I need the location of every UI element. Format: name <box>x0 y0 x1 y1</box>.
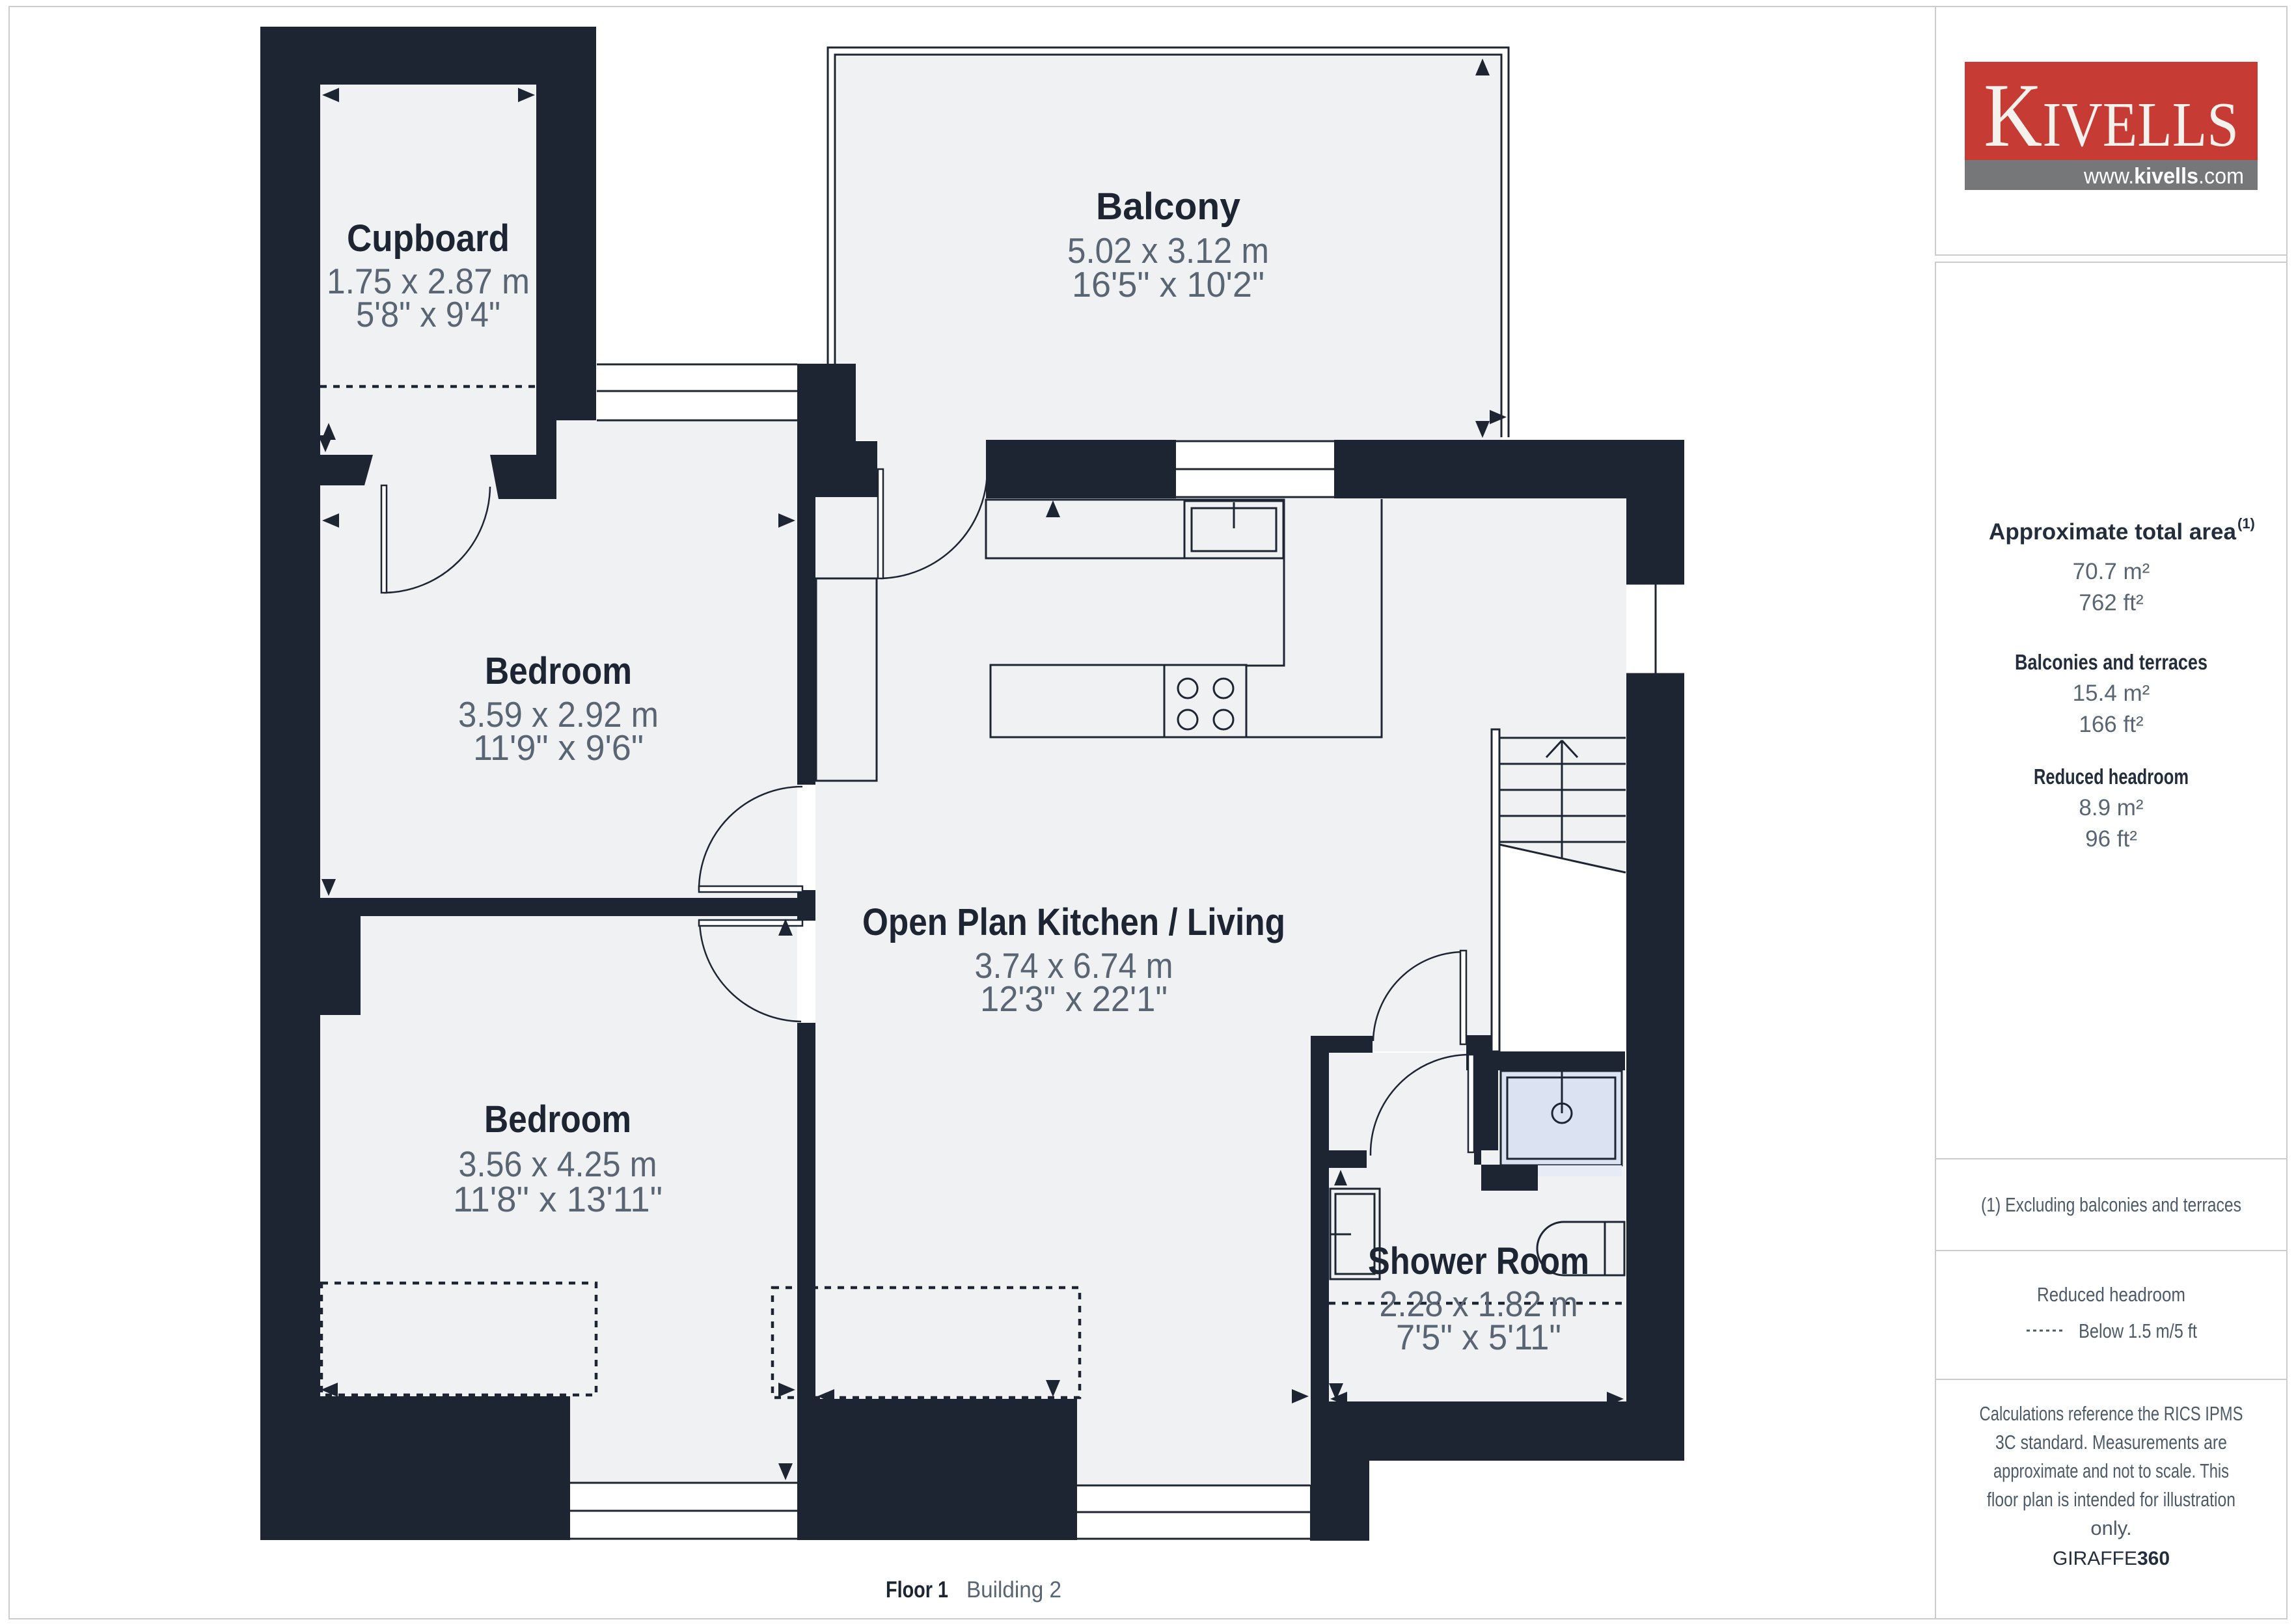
svg-text:Reduced headroom: Reduced headroom <box>2034 765 2189 789</box>
svg-text:12'3" x 22'1": 12'3" x 22'1" <box>980 979 1168 1019</box>
svg-text:Below 1.5 m/5 ft: Below 1.5 m/5 ft <box>2079 1319 2197 1342</box>
svg-text:8.9 m²: 8.9 m² <box>2079 795 2143 820</box>
svg-text:762 ft²: 762 ft² <box>2079 590 2143 616</box>
svg-text:Bedroom: Bedroom <box>485 650 632 692</box>
svg-text:GIRAFFE360: GIRAFFE360 <box>2053 1548 2170 1569</box>
svg-text:floor plan is intended for ill: floor plan is intended for illustration <box>1987 1488 2235 1511</box>
svg-text:Floor 1Building 2: Floor 1Building 2 <box>886 1577 1061 1603</box>
svg-text:96 ft²: 96 ft² <box>2085 826 2137 852</box>
svg-text:Balcony: Balcony <box>1096 185 1240 228</box>
svg-text:Calculations reference the RIC: Calculations reference the RICS IPMS <box>1980 1402 2243 1425</box>
svg-text:Approximate total area: Approximate total area <box>1989 519 2237 545</box>
svg-text:Shower Room: Shower Room <box>1368 1240 1589 1282</box>
svg-text:approximate and not to scale.: approximate and not to scale. This <box>1993 1459 2229 1482</box>
svg-text:Open Plan Kitchen / Living: Open Plan Kitchen / Living <box>862 901 1285 943</box>
svg-text:166 ft²: 166 ft² <box>2079 712 2143 737</box>
svg-text:(1) Excluding balconies and te: (1) Excluding balconies and terraces <box>1981 1193 2241 1216</box>
svg-text:(1): (1) <box>2237 515 2255 532</box>
svg-text:Bedroom: Bedroom <box>484 1098 631 1141</box>
svg-text:70.7 m²: 70.7 m² <box>2073 559 2150 584</box>
svg-text:Cupboard: Cupboard <box>347 217 510 260</box>
svg-text:11'8" x 13'11": 11'8" x 13'11" <box>453 1179 663 1219</box>
svg-text:Kivells: Kivells <box>1984 65 2239 166</box>
svg-text:16'5" x 10'2": 16'5" x 10'2" <box>1072 264 1264 304</box>
svg-text:11'9" x 9'6": 11'9" x 9'6" <box>473 727 644 768</box>
svg-text:3.56 x 4.25 m: 3.56 x 4.25 m <box>459 1144 657 1184</box>
svg-text:15.4 m²: 15.4 m² <box>2073 681 2150 706</box>
svg-text:www.kivells.com: www.kivells.com <box>2083 164 2244 189</box>
svg-text:7'5" x 5'11": 7'5" x 5'11" <box>1396 1317 1561 1357</box>
svg-text:3C standard. Measurements are: 3C standard. Measurements are <box>1995 1431 2227 1454</box>
svg-text:Balconies and terraces: Balconies and terraces <box>2015 650 2207 674</box>
svg-text:5'8" x 9'4": 5'8" x 9'4" <box>356 294 500 334</box>
svg-text:Reduced headroom: Reduced headroom <box>2037 1283 2185 1306</box>
svg-text:only.: only. <box>2090 1517 2131 1539</box>
